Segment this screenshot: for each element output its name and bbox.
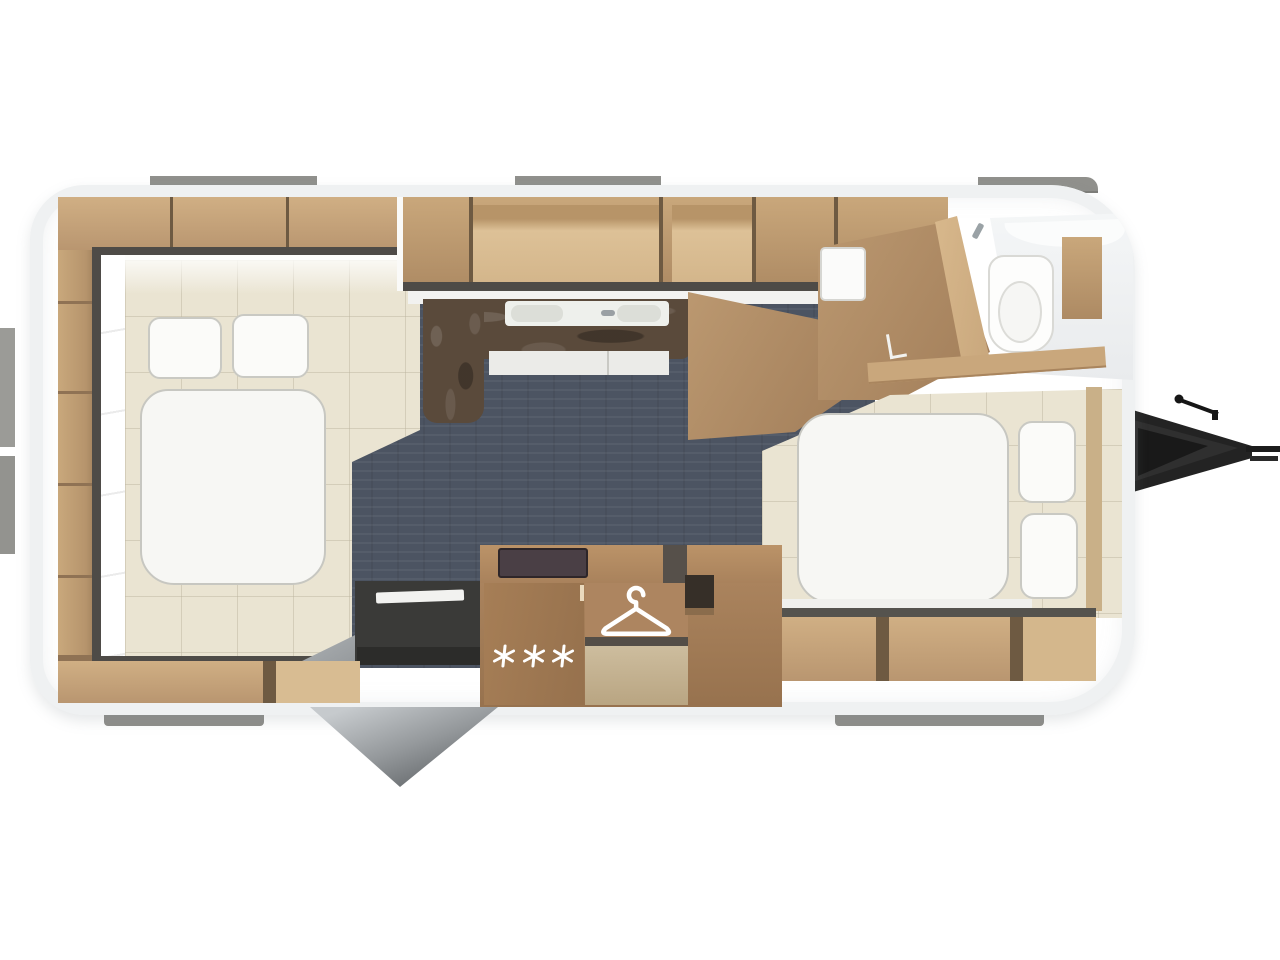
rear-base-trim bbox=[58, 661, 360, 703]
cabinet-divider bbox=[286, 197, 289, 250]
kitchen-worktop-return bbox=[423, 299, 484, 423]
pillow bbox=[232, 314, 309, 378]
unit-front-divider bbox=[607, 351, 609, 375]
front-side-sill bbox=[1086, 387, 1102, 611]
handle-slit bbox=[580, 585, 584, 601]
cabinet-divider bbox=[876, 617, 889, 681]
tow-hitch bbox=[1118, 388, 1280, 500]
trim-light-bay bbox=[276, 661, 360, 703]
hanging-rail bbox=[585, 637, 688, 646]
sink-bowl bbox=[511, 305, 563, 322]
fridge-panel bbox=[484, 583, 584, 705]
front-bed-cabinets bbox=[762, 617, 1096, 681]
toilet-seat bbox=[998, 281, 1042, 343]
rear-overhead-lockers bbox=[58, 197, 404, 250]
open-cubby bbox=[685, 575, 714, 615]
locker-open-bay bbox=[473, 205, 659, 291]
cabinet-divider bbox=[659, 197, 663, 291]
trim-divider bbox=[263, 661, 276, 703]
rear-bedroom-headwall-glow bbox=[125, 254, 405, 294]
rear-bed-mattress bbox=[140, 389, 326, 585]
wardrobe-top bbox=[480, 545, 782, 583]
kitchen-sink bbox=[505, 301, 669, 326]
cabinet-divider bbox=[1010, 617, 1023, 681]
wall-line-top bbox=[92, 247, 404, 255]
counter-dark-strip bbox=[663, 545, 687, 583]
wall-line-left bbox=[92, 247, 101, 665]
faucet bbox=[601, 310, 615, 316]
entry-door-open bbox=[310, 707, 500, 789]
sink-drainer bbox=[617, 305, 661, 322]
cabinet-gap bbox=[397, 197, 403, 291]
cabinet-divider bbox=[469, 197, 473, 291]
stove-top bbox=[498, 548, 588, 578]
caravan-body bbox=[30, 185, 1135, 715]
overhead-appliance bbox=[820, 247, 866, 301]
rear-bumper-fitting-bottom bbox=[0, 456, 15, 554]
bed-box-line bbox=[762, 608, 1096, 617]
snowflake-icon bbox=[490, 635, 578, 677]
floorplan-canvas bbox=[0, 0, 1280, 960]
hanger-icon bbox=[593, 585, 681, 643]
rear-bumper-fitting-top bbox=[0, 328, 15, 447]
pillow bbox=[148, 317, 222, 379]
kitchen-unit-front bbox=[489, 351, 669, 375]
wardrobe-front bbox=[480, 583, 782, 707]
cabinet-divider bbox=[752, 197, 756, 291]
front-bed-mattress bbox=[797, 413, 1009, 603]
wardrobe-niche bbox=[585, 583, 688, 645]
cabinet-light-bay bbox=[1023, 617, 1096, 681]
washroom-cabinet bbox=[1062, 237, 1102, 319]
pillow bbox=[1020, 513, 1078, 599]
pillow bbox=[1018, 421, 1076, 503]
wardrobe-floor bbox=[585, 646, 688, 705]
tow-hitch-icon bbox=[1118, 388, 1280, 500]
locker-open-bay bbox=[672, 205, 752, 291]
toilet bbox=[988, 255, 1054, 353]
cabinet-divider bbox=[170, 197, 173, 250]
